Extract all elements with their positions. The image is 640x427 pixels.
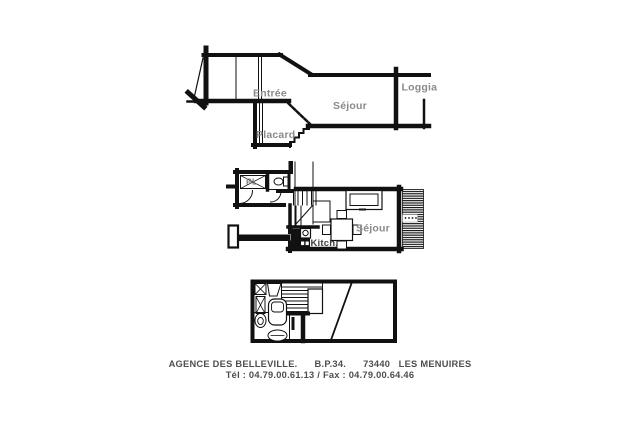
- lower-floor-plan-drawing: [253, 282, 396, 342]
- main-floor-plan-drawing: PL Kitch. Séjour: [228, 161, 424, 251]
- section-label-placard: Placard: [256, 129, 295, 141]
- agency-caption: AGENCE DES BELLEVILLE. B.P.34. 73440 LES…: [0, 359, 640, 380]
- sofa-icon: [346, 191, 382, 210]
- closet-icon: [255, 284, 266, 295]
- section-label-entree: Entrée: [253, 88, 287, 100]
- bath-mat-icon: [268, 330, 287, 341]
- door-arc: [240, 191, 253, 204]
- toilet-icon: [269, 299, 287, 325]
- page-background: Entrée Séjour Loggia Placard: [0, 0, 640, 427]
- section-stairs-dashed: [289, 104, 311, 125]
- section-label-loggia: Loggia: [402, 82, 438, 94]
- section-walls: [196, 48, 429, 147]
- plan-label-living: Séjour: [356, 223, 390, 235]
- plan-label-kitchen: Kitch.: [311, 238, 339, 249]
- plan-label-closet: PL: [246, 177, 257, 187]
- stairs: [278, 191, 330, 230]
- balcony-hatch: [403, 190, 424, 249]
- door-leaf: [292, 317, 295, 330]
- agency-address-line: AGENCE DES BELLEVILLE. B.P.34. 73440 LES…: [0, 359, 640, 370]
- corridor-wall: [229, 226, 291, 248]
- section-label-sejour: Séjour: [333, 100, 367, 112]
- sink-icon: [301, 229, 311, 239]
- cross-section-drawing: Entrée Séjour Loggia Placard: [188, 48, 438, 147]
- agency-phone-line: Tél : 04.79.00.61.13 / Fax : 04.79.00.64…: [0, 370, 640, 381]
- door-arc: [271, 192, 282, 203]
- toilet-icon: [274, 177, 288, 186]
